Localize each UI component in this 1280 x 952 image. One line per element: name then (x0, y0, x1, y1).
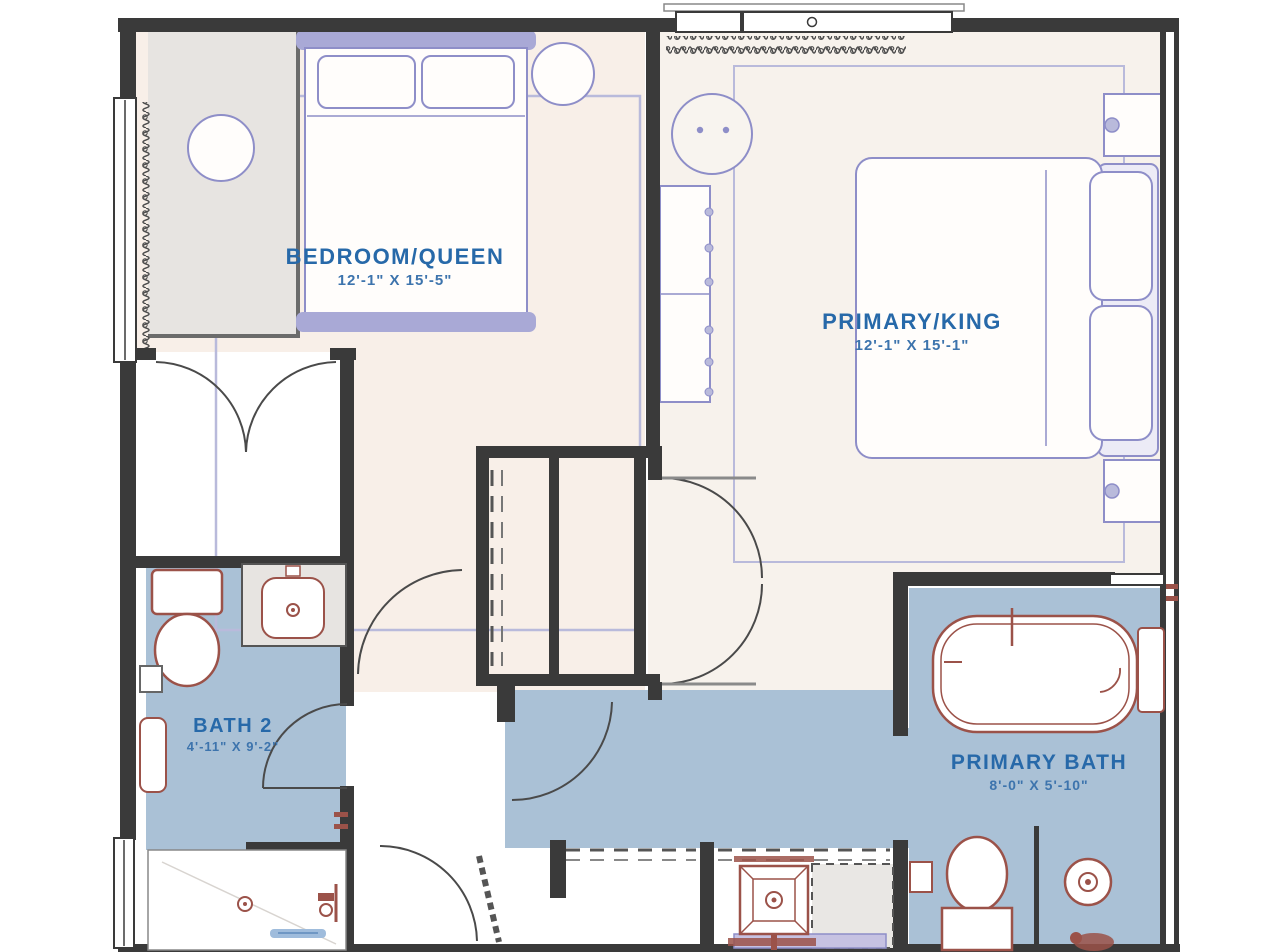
toilet-icon (942, 837, 1012, 950)
towel-bar-icon (1166, 596, 1178, 601)
towel-shelf-icon (140, 718, 166, 792)
door-leaf-hatch (479, 856, 499, 942)
floor-plan: BEDROOM/QUEEN 12'-1" X 15'-5" PRIMARY/KI… (0, 0, 1280, 952)
towel-bar-icon (334, 824, 348, 829)
towel-bar-icon (334, 812, 348, 817)
floor-plan-drawing (0, 0, 1280, 952)
primary-bath-window (1110, 574, 1164, 585)
king-bed (856, 158, 1158, 458)
window-treatment-hatch (666, 36, 906, 54)
left-window-hatch (136, 102, 152, 360)
queen-bed (296, 30, 536, 332)
vanity-sink-icon (242, 564, 346, 646)
shower-tub-icon (148, 850, 346, 950)
wall-niche (140, 666, 162, 692)
bedroom-double-door-right (246, 362, 336, 452)
tp-holder-icon (910, 862, 932, 892)
dresser (660, 186, 713, 402)
bedside-table-icon (532, 43, 594, 105)
nightstand-bottom (1104, 460, 1162, 522)
window-sill (664, 4, 964, 11)
nightstand-top (1104, 94, 1162, 156)
hall-fixtures (728, 856, 893, 950)
round-sink-icon (1065, 859, 1111, 905)
bedroom-closet (148, 30, 300, 338)
towel-bar-icon (1166, 584, 1178, 589)
bedroom-double-door-left (156, 362, 246, 452)
lower-closet-door (380, 846, 477, 941)
round-table-icon (188, 115, 254, 181)
primary-round-table (672, 94, 752, 174)
